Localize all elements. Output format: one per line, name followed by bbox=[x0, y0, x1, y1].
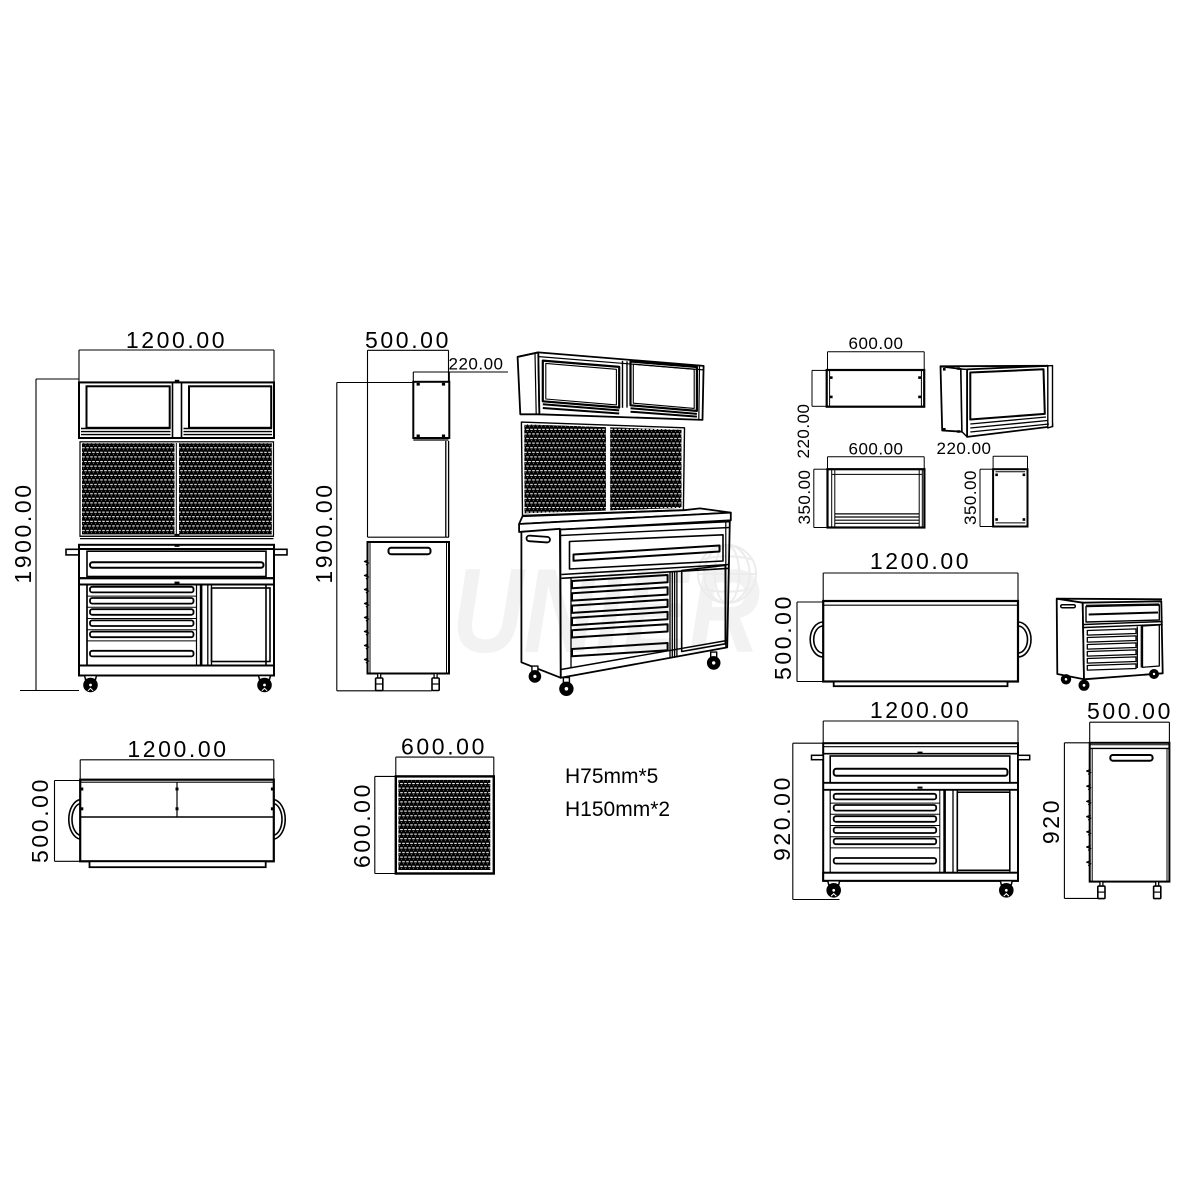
svg-text:500.00: 500.00 bbox=[365, 327, 451, 353]
svg-text:1200.00: 1200.00 bbox=[870, 697, 971, 723]
svg-text:600.00: 600.00 bbox=[401, 734, 487, 760]
svg-text:1200.00: 1200.00 bbox=[870, 548, 971, 574]
svg-text:H75mm*5: H75mm*5 bbox=[565, 765, 658, 788]
svg-text:1200.00: 1200.00 bbox=[127, 736, 228, 762]
svg-text:500.00: 500.00 bbox=[1087, 698, 1173, 724]
svg-text:1900.00: 1900.00 bbox=[311, 482, 337, 583]
svg-text:920: 920 bbox=[1038, 798, 1064, 844]
svg-text:220.00: 220.00 bbox=[449, 355, 504, 374]
svg-text:600.00: 600.00 bbox=[349, 782, 375, 868]
svg-text:600.00: 600.00 bbox=[849, 439, 904, 458]
svg-text:1900.00: 1900.00 bbox=[10, 482, 36, 583]
svg-text:500.00: 500.00 bbox=[770, 594, 796, 680]
svg-text:H150mm*2: H150mm*2 bbox=[565, 798, 670, 821]
svg-text:600.00: 600.00 bbox=[849, 334, 904, 353]
svg-text:920.00: 920.00 bbox=[769, 775, 795, 861]
svg-text:220.00: 220.00 bbox=[937, 439, 992, 458]
svg-text:1200.00: 1200.00 bbox=[126, 327, 227, 353]
svg-text:350.00: 350.00 bbox=[795, 470, 814, 525]
svg-text:350.00: 350.00 bbox=[961, 470, 980, 525]
svg-text:500.00: 500.00 bbox=[27, 777, 53, 863]
svg-text:220.00: 220.00 bbox=[794, 404, 813, 459]
svg-text:UNIER: UNIER bbox=[452, 544, 760, 678]
